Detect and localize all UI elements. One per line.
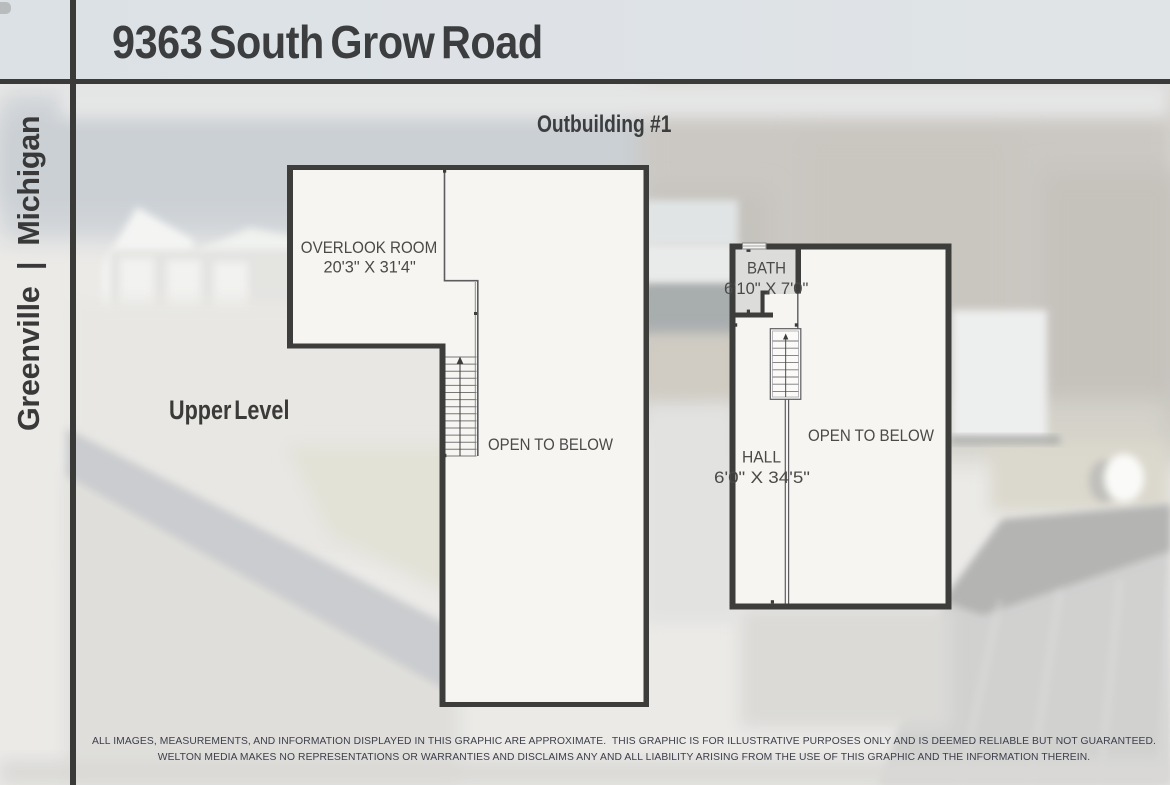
svg-text:OPEN TO BELOW: OPEN TO BELOW: [808, 427, 934, 445]
svg-text:20'3" X 31'4": 20'3" X 31'4": [324, 258, 416, 277]
svg-text:6'0" X 34'5": 6'0" X 34'5": [714, 469, 810, 487]
svg-text:OVERLOOK ROOM: OVERLOOK ROOM: [301, 238, 437, 257]
svg-text:HALL: HALL: [742, 449, 781, 467]
svg-text:BATH: BATH: [747, 260, 786, 278]
svg-text:6'10" X 7'0": 6'10" X 7'0": [724, 280, 809, 298]
svg-text:OPEN TO BELOW: OPEN TO BELOW: [488, 436, 613, 454]
